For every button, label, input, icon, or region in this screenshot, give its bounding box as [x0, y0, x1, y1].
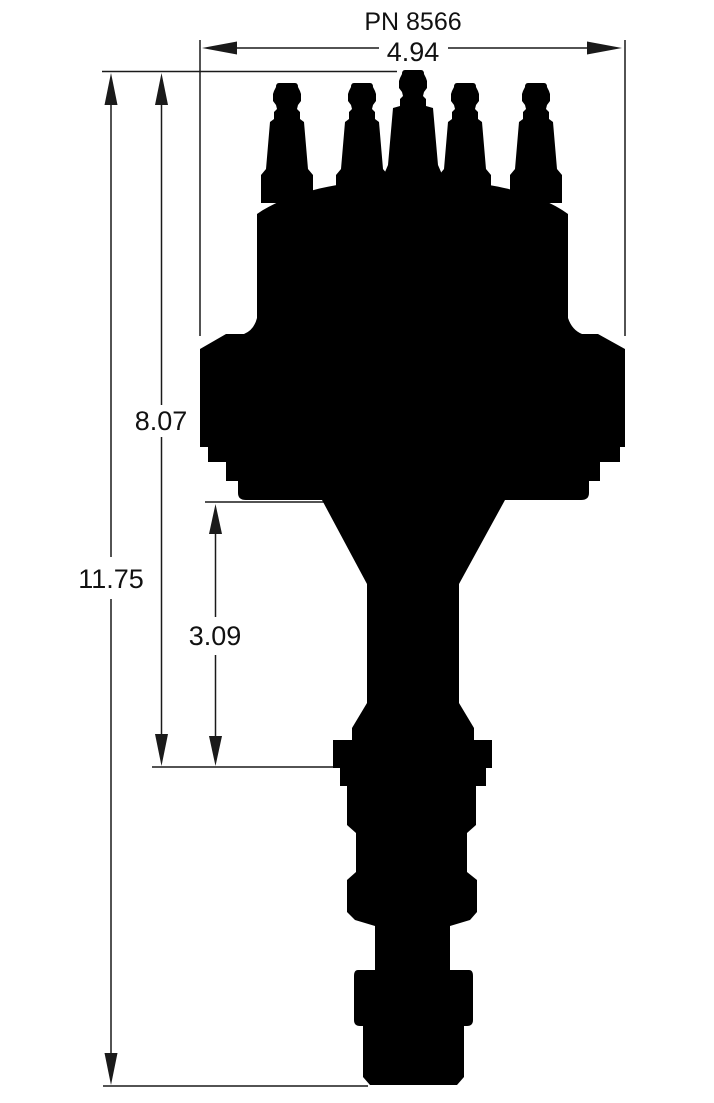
arrowhead-up-overall-icon: [105, 73, 118, 105]
cap-terminal-tower-center: [385, 70, 441, 200]
cap-terminal-tower-5: [510, 83, 562, 203]
arrowhead-right-icon: [587, 42, 622, 55]
arrowhead-down-lower-icon: [209, 736, 222, 766]
dim-label-body-height: 8.07: [135, 406, 188, 436]
distributor-body: [200, 179, 625, 1085]
distributor-dimension-drawing: PN 8566 4.94 11.75 8.07 3.09: [0, 0, 714, 1103]
distributor-silhouette: [200, 70, 625, 1085]
dim-label-overall-height: 11.75: [78, 564, 144, 594]
arrowhead-down-body-icon: [155, 734, 168, 766]
part-number-label: PN 8566: [364, 8, 461, 36]
arrowhead-down-overall-icon: [105, 1053, 118, 1085]
cap-terminal-tower-1: [261, 83, 313, 203]
arrowhead-left-icon: [202, 42, 237, 55]
arrowhead-up-body-icon: [155, 73, 168, 105]
dim-label-lower-section: 3.09: [189, 621, 242, 651]
arrowhead-up-lower-icon: [209, 504, 222, 534]
cap-terminal-tower-4: [439, 83, 491, 203]
cap-terminal-tower-2: [336, 83, 388, 203]
dim-label-cap-width: 4.94: [387, 37, 440, 67]
drawing-svg: PN 8566 4.94 11.75 8.07 3.09: [0, 0, 714, 1103]
